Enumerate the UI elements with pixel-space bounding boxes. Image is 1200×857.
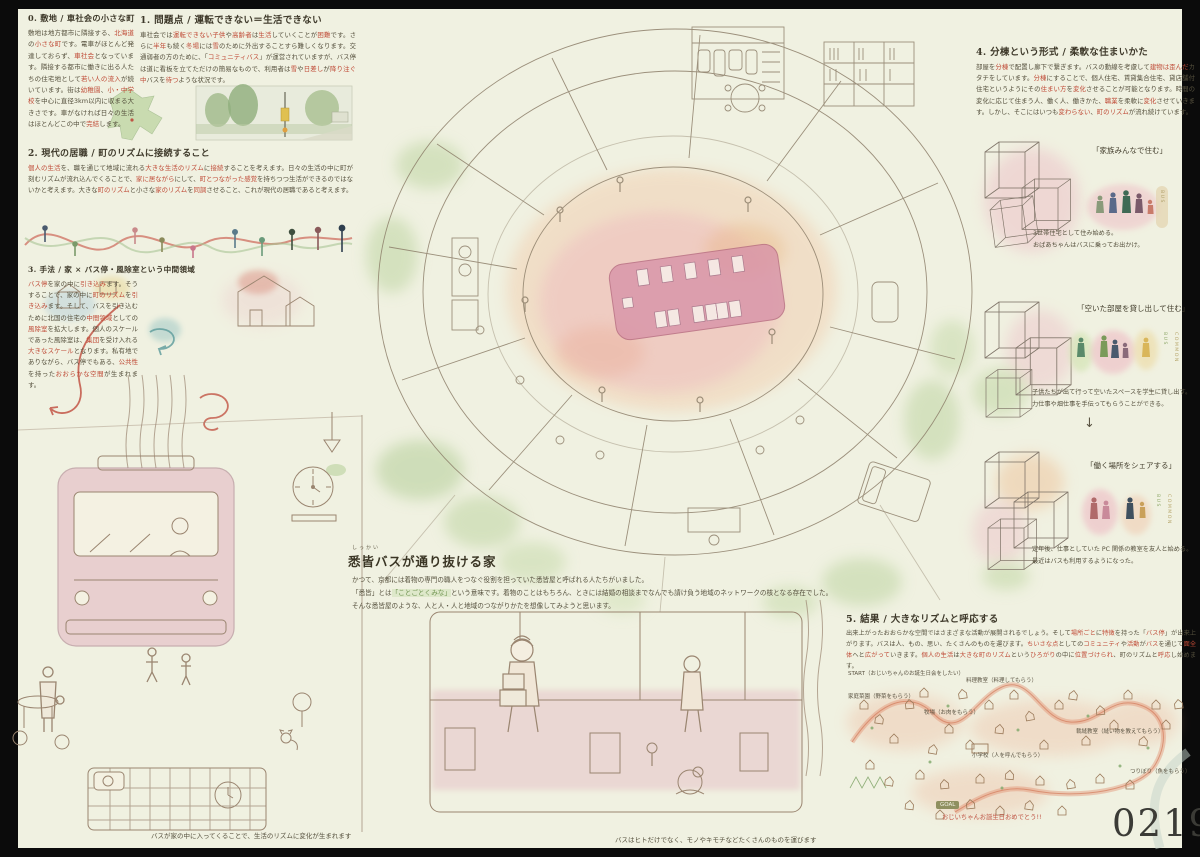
section-3-heading: 3. 手法 / 家 × バス停・風除室という中間領域 (28, 264, 138, 275)
caption-left: バスが家の中に入ってくることで、生活のリズムに変化が生まれます (151, 830, 351, 840)
section-3-body: バス停を家の中に引き込みます。そうすることで、家の中に町のリズムを引き込みます。… (28, 279, 138, 391)
title-line-3: そんな悉皆屋のような、人と人・人と地域のつながりかたを想像してみようと思います。 (352, 600, 832, 613)
title-furigana: しっかい (352, 544, 380, 551)
map-goal-badge: GOAL (936, 801, 959, 809)
section-0-site: 0. 敷地 / 車社会の小さな町 敷地は地方都市に隣接する、北海道の小さな町です… (28, 12, 134, 130)
map-label-vegetable-garden: 家庭菜園（野菜をもらう） (848, 692, 914, 700)
scenario-3-tag-common: COMMON (1166, 494, 1171, 525)
section-3-method: 3. 手法 / 家 × バス停・風除室という中間領域 バス停を家の中に引き込みま… (28, 264, 138, 391)
site-photo (196, 84, 352, 140)
section-1-body: 車社会では運転できない子供や高齢者は生活していくことが困難です。さらに半年も続く… (140, 30, 356, 86)
scenario-3-label: 「働く場所をシェアする」 (1086, 460, 1176, 471)
caption-center: バスはヒトだけでなく、モノやキモチなどたくさんのものを運びます (615, 834, 817, 844)
scenario-1-tag-bus: BUS (1159, 190, 1164, 204)
map-label-fishing-pond: つりぼり（魚をもらう） (1130, 767, 1191, 775)
section-4-body: 部屋を分棟で配置し廊下で繋ぎます。バスの動線を考慮して建物は歪んだカタチをしてい… (976, 62, 1195, 118)
scenario-3-tag-bus: BUS (1155, 494, 1160, 508)
scenario-2-caption: 子供たちが出て行って空いたスペースを学生に貸し出す。 力仕事や畑仕事を手伝っても… (1032, 387, 1191, 411)
map-label-cooking-class: 料理教室（料理してもらう） (966, 676, 1037, 684)
section-2-body: 個人の生活を、職を通じて地域に流れる大きな生活のリズムに接続することを考えます。… (28, 163, 353, 197)
map-label-farm: 牧場（お肉をもらう） (924, 708, 979, 716)
poster-title: 悉皆バスが通り抜ける家 (348, 551, 497, 570)
section-5-result: 5. 結果 / 大きなリズムと呼応する 出来上がったおおらかな空間ではさまざまな… (846, 611, 1196, 672)
map-label-start: START（おじいちゃんのお誕生日会をしたい） (848, 669, 964, 677)
title-description: かつて、京都には着物の専門の職人をつなぐ役割を担っていた悉皆屋と呼ばれる人たちが… (352, 574, 832, 613)
section-5-heading: 5. 結果 / 大きなリズムと呼応する (846, 611, 1196, 625)
section-5-body: 出来上がったおおらかな空間ではさまざまな活動が展開されるでしょう。そして場所ごと… (846, 629, 1196, 672)
map-goal-text: おじいちゃんお誕生日おめでとう!! (942, 812, 1042, 821)
section-2-heading: 2. 現代の居職 / 町のリズムに接続すること (28, 146, 353, 159)
section-4-form: 4. 分棟という形式 / 柔軟な住まいかた 部屋を分棟で配置し廊下で繋ぎます。バ… (976, 44, 1195, 118)
scenario-2-tag-bus: BUS (1162, 332, 1167, 346)
section-1-problem: 1. 問題点 / 運転できない＝生活できない 車社会では運転できない子供や高齢者… (140, 12, 356, 86)
presentation-board: 0. 敷地 / 車社会の小さな町 敷地は地方都市に隣接する、北海道の小さな町です… (0, 0, 1200, 857)
scenario-2-tag-common: COMMON (1173, 332, 1178, 363)
map-label-elementary-school: 小学校（人を呼んでもらう） (972, 751, 1043, 759)
title-line-1: かつて、京都には着物の専門の職人をつなぐ役割を担っていた悉皆屋と呼ばれる人たちが… (352, 574, 832, 587)
section-2-rhythm: 2. 現代の居職 / 町のリズムに接続すること 個人の生活を、職を通じて地域に流… (28, 146, 353, 197)
title-line-2: 「悉皆」とは「ことごとくみな」という意味です。着物のことはもちろん、ときには結婚… (352, 587, 832, 600)
scenario-1-label: 「家族みんなで住む」 (1092, 145, 1167, 156)
section-1-heading: 1. 問題点 / 運転できない＝生活できない (140, 12, 356, 26)
scenario-3-caption: 定年後、仕事としていた PC 関係の教室を友人と始める。 最近はバスも利用するよ… (1032, 544, 1192, 568)
section-4-heading: 4. 分棟という形式 / 柔軟な住まいかた (976, 44, 1195, 58)
section-0-body: 敷地は地方都市に隣接する、北海道の小さな町です。電車がほとんど発達しておらず、車… (28, 28, 134, 130)
scenario-2-label: 「空いた部屋を貸し出して住む」 (1077, 303, 1189, 314)
entry-number: 0219 (1112, 802, 1200, 845)
poster-artwork (0, 0, 1200, 857)
scenario-1-caption: 3世帯住宅として住み始める。 おばあちゃんはバスに乗ってお出かけ。 (1033, 228, 1144, 252)
section-0-heading: 0. 敷地 / 車社会の小さな町 (28, 12, 134, 24)
map-label-sewing-class: 裁縫教室（縫い物を教えてもらう） (1076, 727, 1163, 735)
down-arrow: ↓ (1084, 416, 1095, 431)
